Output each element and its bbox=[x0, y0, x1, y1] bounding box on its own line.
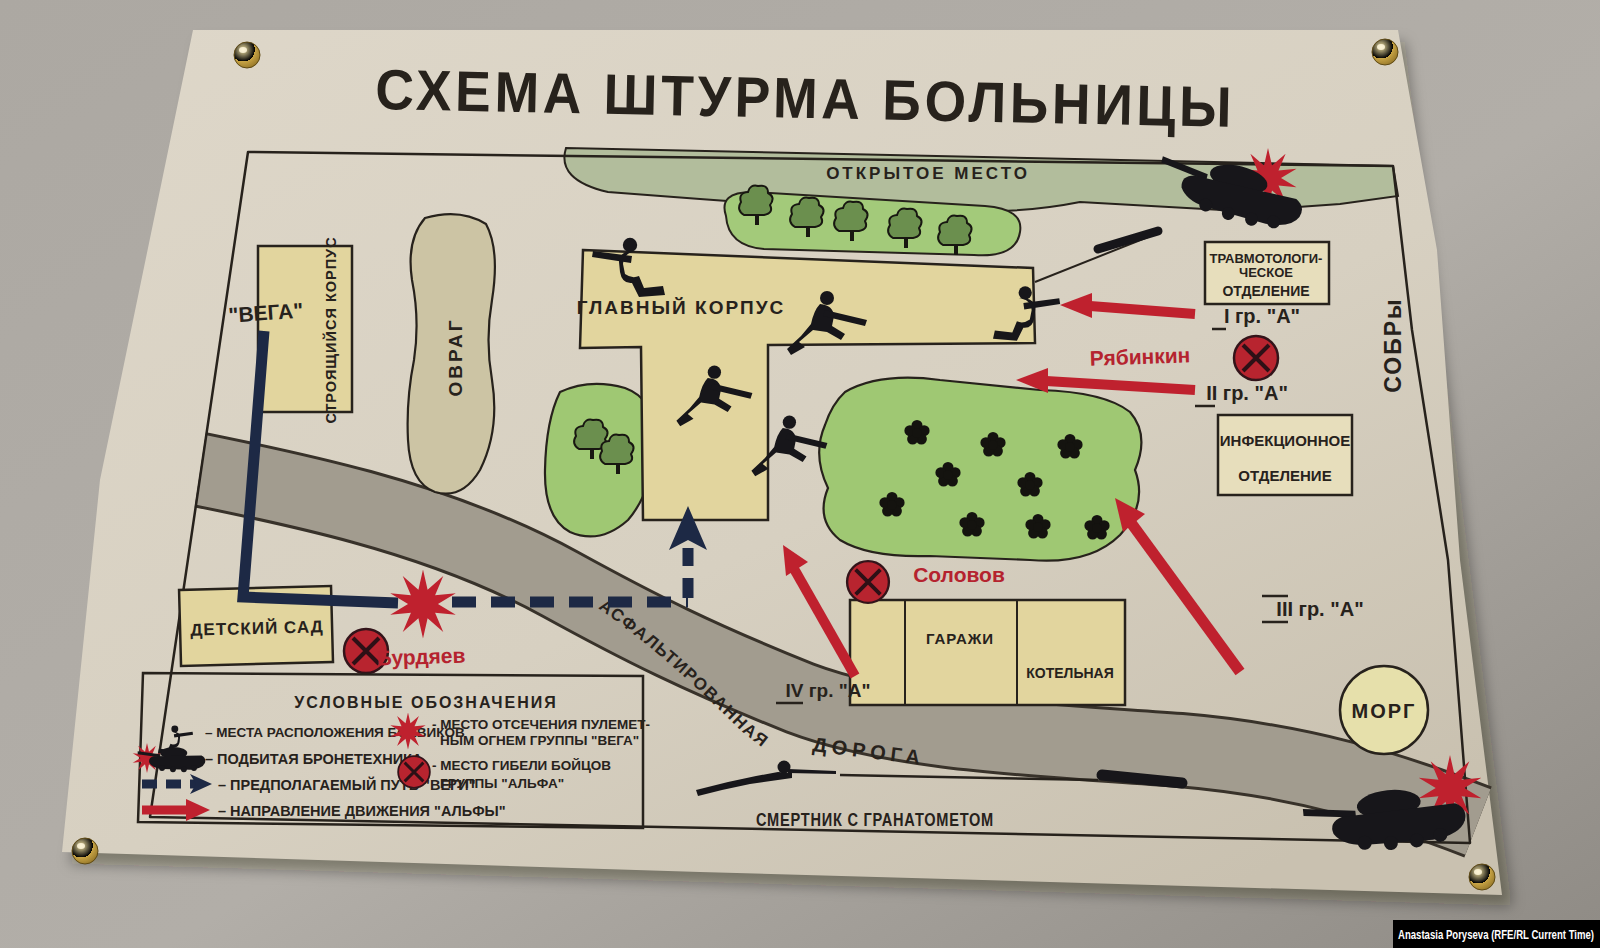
legend-item-4: – НАПРАВЛЕНИЕ ДВИЖЕНИЯ "АЛЬФЫ" bbox=[218, 803, 506, 819]
infection-department: ИНФЕКЦИОННОЕ ОТДЕЛЕНИЕ bbox=[1218, 415, 1352, 495]
main-building-label: ГЛАВНЫЙ КОРПУС bbox=[577, 297, 786, 318]
fallen-burdyaev-label: Бурдяев bbox=[376, 643, 466, 669]
garage-shape bbox=[850, 600, 1125, 705]
infection-label-2: ОТДЕЛЕНИЕ bbox=[1238, 467, 1331, 484]
ravine-area: ОВРАГ bbox=[408, 214, 495, 494]
push-pin-bottom-left bbox=[72, 838, 98, 864]
death-site-icon bbox=[1234, 336, 1278, 380]
kindergarten-label: ДЕТСКИЙ САД bbox=[190, 617, 324, 639]
legend-item-6-line2: ГРУППЫ "АЛЬФА" bbox=[440, 776, 564, 791]
group3-label: III гр. "А" bbox=[1276, 598, 1363, 620]
legend-item-6-line1: - МЕСТО ГИБЕЛИ БОЙЦОВ bbox=[432, 758, 611, 773]
photo-stage: СХЕМА ШТУРМА БОЛЬНИЦЫ ОТКРЫТОЕ МЕСТО АСФ… bbox=[0, 0, 1600, 948]
legend-title: УСЛОВНЫЕ ОБОЗНАЧЕНИЯ bbox=[294, 694, 557, 711]
construction-label: СТРОЯЩИЙСЯ КОРПУС bbox=[322, 236, 339, 423]
construction-building: СТРОЯЩИЙСЯ КОРПУС bbox=[258, 236, 352, 423]
photo-credit: Anastasia Poryseva (RFE/RL Current Time) bbox=[1393, 920, 1600, 948]
morgue-label: МОРГ bbox=[1352, 700, 1417, 722]
open-field-label: ОТКРЫТОЕ МЕСТО bbox=[826, 164, 1030, 183]
group1-label: I гр. "А" bbox=[1224, 305, 1300, 327]
legend-item-1: – МЕСТА РАСПОЛОЖЕНИЯ БОЕВИКОВ bbox=[205, 725, 465, 740]
legend-item-5-line1: - МЕСТО ОТСЕЧЕНИЯ ПУЛЕМЕТ- bbox=[432, 717, 650, 732]
sobr-label: СОБРы bbox=[1380, 297, 1406, 392]
group4-label: IV гр. "А" bbox=[785, 680, 870, 701]
legend-item-3: – ПРЕДПОЛАГАЕМЫЙ ПУТЬ "ВЕГИ" bbox=[218, 776, 476, 793]
boiler-label: КОТЕЛЬНАЯ bbox=[1026, 665, 1114, 681]
trauma-department: ТРАВМОТОЛОГИ- ЧЕСКОЕ ОТДЕЛЕНИЕ bbox=[1205, 242, 1329, 304]
garage-label: ГАРАЖИ bbox=[926, 630, 994, 647]
bush-field bbox=[819, 378, 1141, 561]
death-site-icon bbox=[847, 561, 889, 603]
group2-label: II гр. "А" bbox=[1206, 382, 1288, 404]
trauma-label-3: ОТДЕЛЕНИЕ bbox=[1222, 283, 1309, 299]
ravine-label: ОВРАГ bbox=[445, 318, 466, 397]
legend-item-5-line2: НЫМ ОГНЕМ ГРУППЫ "ВЕГА" bbox=[440, 733, 639, 748]
infection-label-1: ИНФЕКЦИОННОЕ bbox=[1220, 432, 1350, 449]
fallen-solovov-label: Соловов bbox=[913, 563, 1005, 586]
credit-text: Anastasia Poryseva (RFE/RL Current Time) bbox=[1398, 928, 1594, 942]
push-pin-top-left bbox=[234, 42, 260, 68]
garage-boiler-building: ГАРАЖИ КОТЕЛЬНАЯ bbox=[850, 600, 1125, 705]
trauma-label-2: ЧЕСКОЕ bbox=[1239, 265, 1293, 280]
push-pin-bottom-right bbox=[1469, 864, 1495, 890]
trauma-label-1: ТРАВМОТОЛОГИ- bbox=[1210, 251, 1323, 266]
suicide-bomber-label: СМЕРТНИК С ГРАНАТОМЕТОМ bbox=[756, 809, 994, 830]
morgue-building: МОРГ bbox=[1340, 666, 1428, 754]
push-pin-top-right bbox=[1372, 39, 1398, 65]
assault-map-photo: СХЕМА ШТУРМА БОЛЬНИЦЫ ОТКРЫТОЕ МЕСТО АСФ… bbox=[0, 0, 1600, 948]
fallen-ryabinkin-label: Рябинкин bbox=[1089, 343, 1190, 369]
legend-item-2: – ПОДБИТАЯ БРОНЕТЕХНИКА bbox=[205, 751, 423, 767]
alpha-death-site-icon bbox=[398, 756, 430, 788]
